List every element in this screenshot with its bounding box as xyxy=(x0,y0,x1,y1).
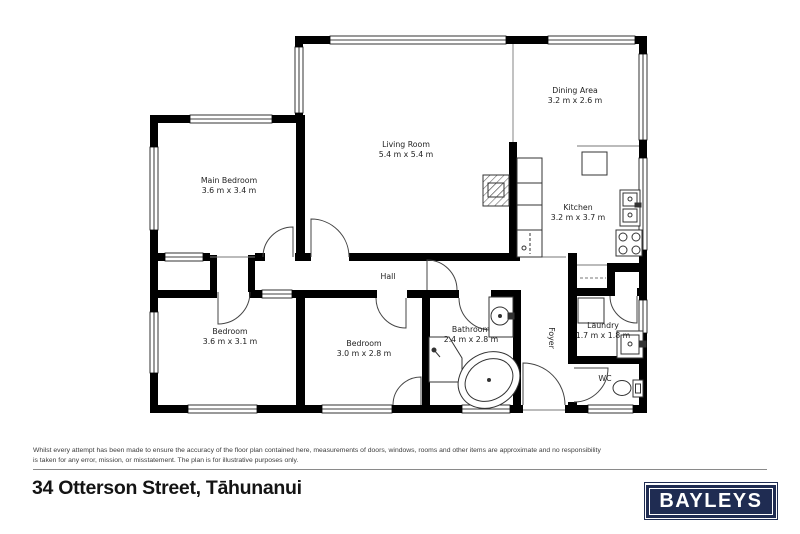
window xyxy=(588,405,633,413)
room-label-main-bedroom: Main Bedroom 3.6 m x 3.4 m xyxy=(201,176,257,195)
room-label-hall: Hall xyxy=(381,272,396,281)
door-laundry xyxy=(610,296,637,323)
svg-text:3.6 m x 3.4 m: 3.6 m x 3.4 m xyxy=(202,186,257,195)
svg-text:Kitchen: Kitchen xyxy=(563,203,592,212)
room-label-laundry: Laundry 1.7 m x 1.8 m xyxy=(576,321,631,340)
svg-text:2.4 m x 2.8 m: 2.4 m x 2.8 m xyxy=(444,335,499,344)
bayleys-logo-field: BAYLEYS xyxy=(646,485,775,518)
door-bedroom-3 xyxy=(376,298,406,328)
room-label-kitchen: Kitchen 3.2 m x 3.7 m xyxy=(551,203,606,222)
svg-text:Bedroom: Bedroom xyxy=(212,327,247,336)
window xyxy=(165,253,203,261)
svg-text:5.4 m x 5.4 m: 5.4 m x 5.4 m xyxy=(379,150,434,159)
door-bedroom-2 xyxy=(218,292,250,324)
svg-text:Living Room: Living Room xyxy=(382,140,430,149)
door-front-entry xyxy=(523,363,565,405)
door-living-room xyxy=(311,219,349,257)
svg-text:Main Bedroom: Main Bedroom xyxy=(201,176,257,185)
floor-plan-canvas: Main Bedroom 3.6 m x 3.4 m Living Room 5… xyxy=(0,0,800,445)
window xyxy=(330,36,506,44)
address-title: 34 Otterson Street, Tāhunanui xyxy=(32,477,302,500)
window xyxy=(548,36,635,44)
svg-text:Bedroom: Bedroom xyxy=(346,339,381,348)
svg-text:3.0 m x 2.8 m: 3.0 m x 2.8 m xyxy=(337,349,392,358)
door-main-bedroom xyxy=(263,227,293,257)
svg-text:3.6 m x 3.1 m: 3.6 m x 3.1 m xyxy=(203,337,258,346)
svg-text:3.2 m x 3.7 m: 3.2 m x 3.7 m xyxy=(551,213,606,222)
room-label-bathroom: Bathroom 2.4 m x 2.8 m xyxy=(444,325,499,344)
room-label-wc: WC xyxy=(598,374,612,383)
window xyxy=(150,147,158,230)
bayleys-logo-keyline: BAYLEYS xyxy=(649,488,772,515)
room-label-bedroom-3: Bedroom 3.0 m x 2.8 m xyxy=(337,339,392,358)
window xyxy=(322,405,392,413)
svg-text:Dining Area: Dining Area xyxy=(552,86,598,95)
toilet xyxy=(613,380,643,397)
room-labels: Main Bedroom 3.6 m x 3.4 m Living Room 5… xyxy=(201,86,630,383)
divider-line xyxy=(33,469,767,470)
room-label-foyer: Foyer xyxy=(547,327,556,349)
svg-text:Laundry: Laundry xyxy=(587,321,619,330)
window xyxy=(190,115,272,123)
stove xyxy=(616,230,642,256)
bayleys-logo: BAYLEYS xyxy=(644,482,778,520)
room-label-bedroom-2: Bedroom 3.6 m x 3.1 m xyxy=(203,327,258,346)
bayleys-logo-text: BAYLEYS xyxy=(659,490,762,513)
washing-machine xyxy=(578,298,604,323)
door-bedroom3-closet xyxy=(393,377,421,405)
kitchen-sink xyxy=(620,190,641,226)
svg-text:3.2 m x 2.6 m: 3.2 m x 2.6 m xyxy=(548,96,603,105)
svg-text:Bathroom: Bathroom xyxy=(452,325,490,334)
window xyxy=(295,47,303,113)
fireplace xyxy=(483,175,509,206)
disclaimer-text: Whilst every attempt has been made to en… xyxy=(33,446,605,466)
bathroom-vanity xyxy=(489,297,514,337)
window xyxy=(188,405,257,413)
window xyxy=(262,290,292,298)
kitchen-island xyxy=(582,152,607,175)
window xyxy=(639,300,647,333)
kitchen-counter xyxy=(517,158,542,257)
room-label-dining-area: Dining Area 3.2 m x 2.6 m xyxy=(548,86,603,105)
door-hall-closet xyxy=(427,260,457,290)
window xyxy=(639,54,647,140)
window xyxy=(150,312,158,373)
room-label-living-room: Living Room 5.4 m x 5.4 m xyxy=(379,140,434,159)
svg-text:1.7 m x 1.8 m: 1.7 m x 1.8 m xyxy=(576,331,631,340)
